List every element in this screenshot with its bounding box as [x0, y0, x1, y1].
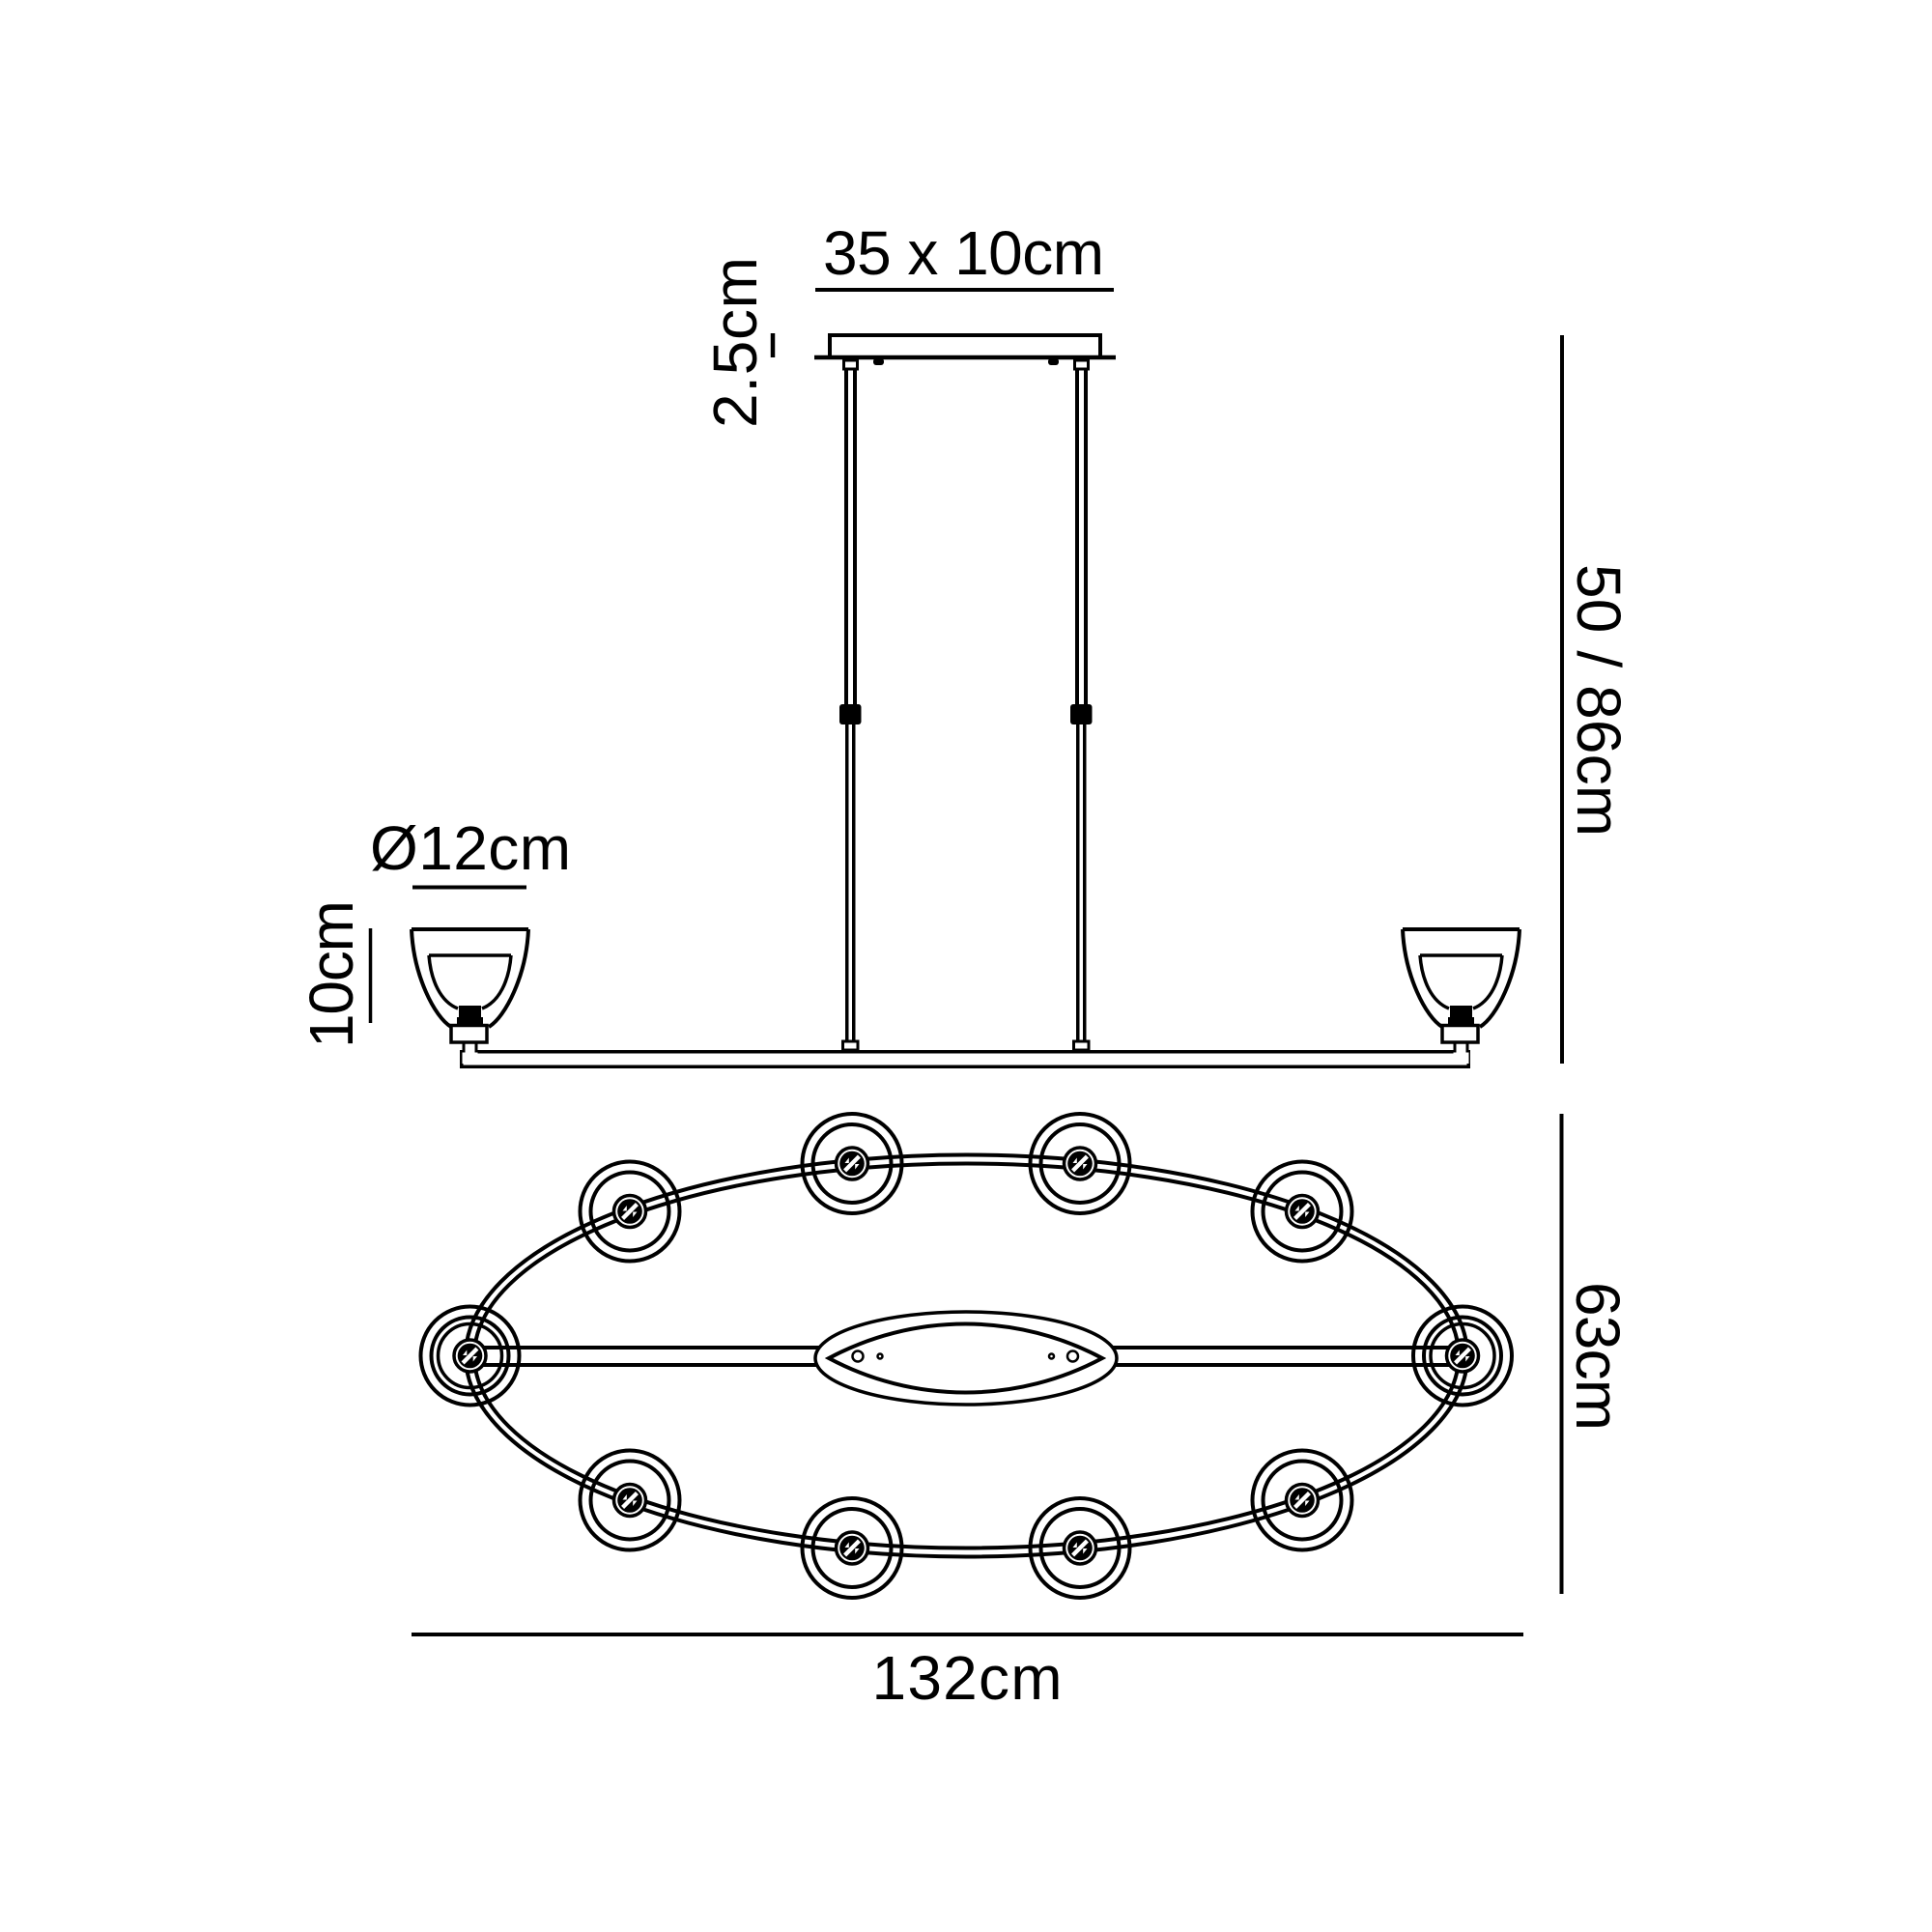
svg-text:Ø12cm: Ø12cm [370, 813, 571, 883]
svg-text:2.5cm: 2.5cm [700, 257, 770, 428]
svg-text:50 / 86cm: 50 / 86cm [1564, 564, 1634, 837]
svg-text:10cm: 10cm [297, 900, 366, 1048]
svg-text:63cm: 63cm [1563, 1282, 1633, 1431]
svg-text:35 x 10cm: 35 x 10cm [823, 218, 1104, 288]
svg-text:132cm: 132cm [872, 1643, 1063, 1713]
